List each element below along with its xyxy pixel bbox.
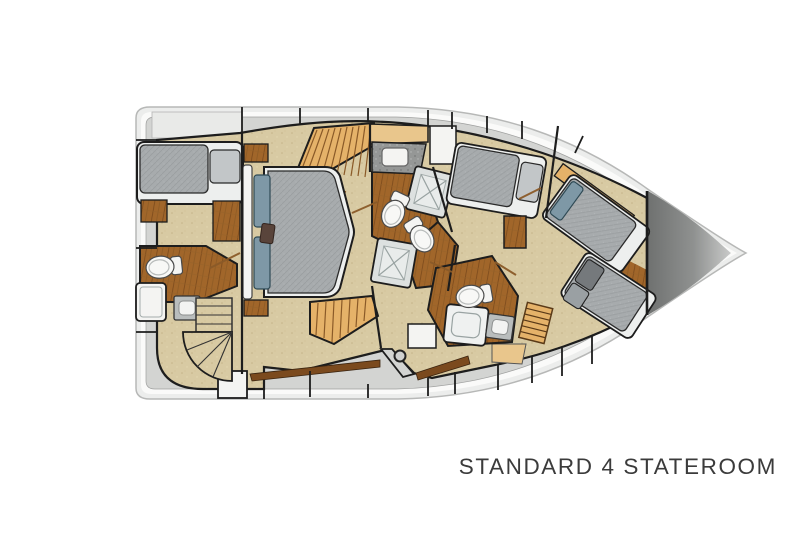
yacht-floorplan-page: STANDARD 4 STATEROOM	[0, 0, 799, 533]
vanity-sink	[382, 148, 408, 166]
deck-step-pad	[492, 344, 526, 364]
guest-berth-mattress	[450, 145, 520, 207]
forward-shower	[443, 304, 489, 346]
master-bench-fwd	[244, 144, 268, 162]
shower-stall-day	[370, 238, 417, 288]
guest-dresser	[504, 216, 526, 248]
master-bed-mattress	[268, 171, 349, 293]
bow-storage-locker	[648, 191, 731, 315]
forward-head-cabinet	[408, 324, 436, 348]
master-headboard	[243, 165, 252, 299]
master-pillow-stbd	[254, 237, 270, 289]
plan-caption: STANDARD 4 STATEROOM	[459, 454, 777, 480]
deck-fill-cap	[395, 351, 406, 362]
vanity-counter	[370, 124, 428, 144]
aft-bed-pillow	[210, 150, 240, 183]
master-pillow-port	[254, 175, 270, 227]
aft-bed-mattress	[140, 145, 208, 193]
forward-sink	[485, 313, 514, 340]
master-bench-aft	[244, 300, 268, 316]
aft-nightstand	[141, 200, 167, 222]
master-accent-pillow	[260, 223, 276, 244]
aft-dresser	[213, 201, 240, 241]
head-cabinet	[430, 126, 456, 164]
